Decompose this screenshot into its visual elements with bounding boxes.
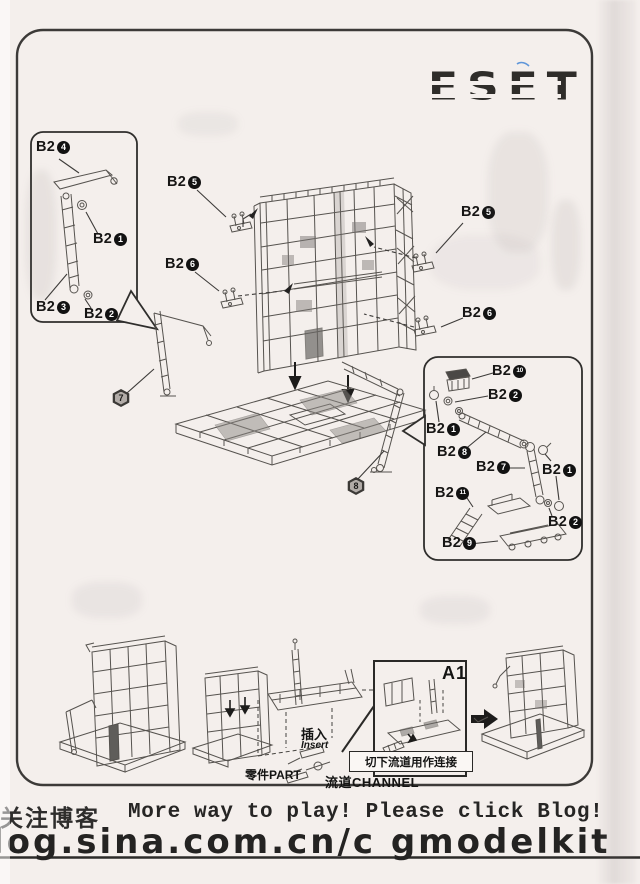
bracket-part-b2-6-right [414, 316, 436, 336]
part-label-B2-5: B25 [461, 204, 495, 220]
part-label-B2-10: B210 [492, 363, 526, 379]
eset-logo-text: ESET [428, 68, 568, 107]
channel-annotation-label: 流道CHANNEL [325, 772, 419, 791]
insert-label-en: Insert [301, 740, 328, 751]
eset-logo: ESET [428, 68, 568, 116]
part-label-B2-6: B26 [165, 256, 199, 272]
bracket-part-b2-5-right [412, 252, 434, 272]
part-label-B2-4: B24 [36, 139, 70, 155]
part-label-B2-7: B27 [476, 459, 510, 475]
part-label-B2-3: B23 [36, 299, 70, 315]
logo-stencil-gap [425, 94, 561, 98]
part-label-B2-11: B211 [435, 485, 469, 501]
wall-panel-drawing [254, 178, 416, 373]
part-label-B2-2: B22 [488, 387, 522, 403]
instruction-sheet-page: ESET B24B21B23B22B25B26B25B26B210B22B21B… [0, 0, 640, 884]
assembly-step-2-drawing [193, 667, 272, 767]
left-edge-highlight [0, 0, 10, 884]
assembly-step-1-drawing [60, 636, 185, 772]
part-label-B2-2: B22 [84, 306, 118, 322]
footer-blog-url: log.sina.com.cn/c gmodelkit [0, 822, 611, 862]
part-label-B2-8: B28 [437, 444, 471, 460]
bracket-part-b2-6-left [221, 288, 243, 308]
part-label-B2-1: B21 [426, 421, 460, 437]
assembly-line-art [0, 0, 640, 884]
assembly-final-drawing [474, 646, 584, 759]
part-label-B2-1: B21 [93, 231, 127, 247]
part-label-B2-1: B21 [542, 462, 576, 478]
part-annotation-label: 零件PART [245, 766, 301, 783]
part-label-B2-2: B22 [548, 514, 582, 530]
a1-inset-label: A1 [442, 663, 467, 684]
footer-tagline: More way to play! Please click Blog! [128, 801, 603, 824]
logo-stencil-gap [425, 81, 561, 85]
cut-runner-note: 切下流道用作连接 [349, 751, 473, 772]
page-border [17, 30, 592, 785]
part-label-B2-9: B29 [442, 535, 476, 551]
part-label-B2-5: B25 [167, 174, 201, 190]
a1-inset-parts-drawing [384, 678, 460, 744]
part-label-B2-6: B26 [462, 305, 496, 321]
